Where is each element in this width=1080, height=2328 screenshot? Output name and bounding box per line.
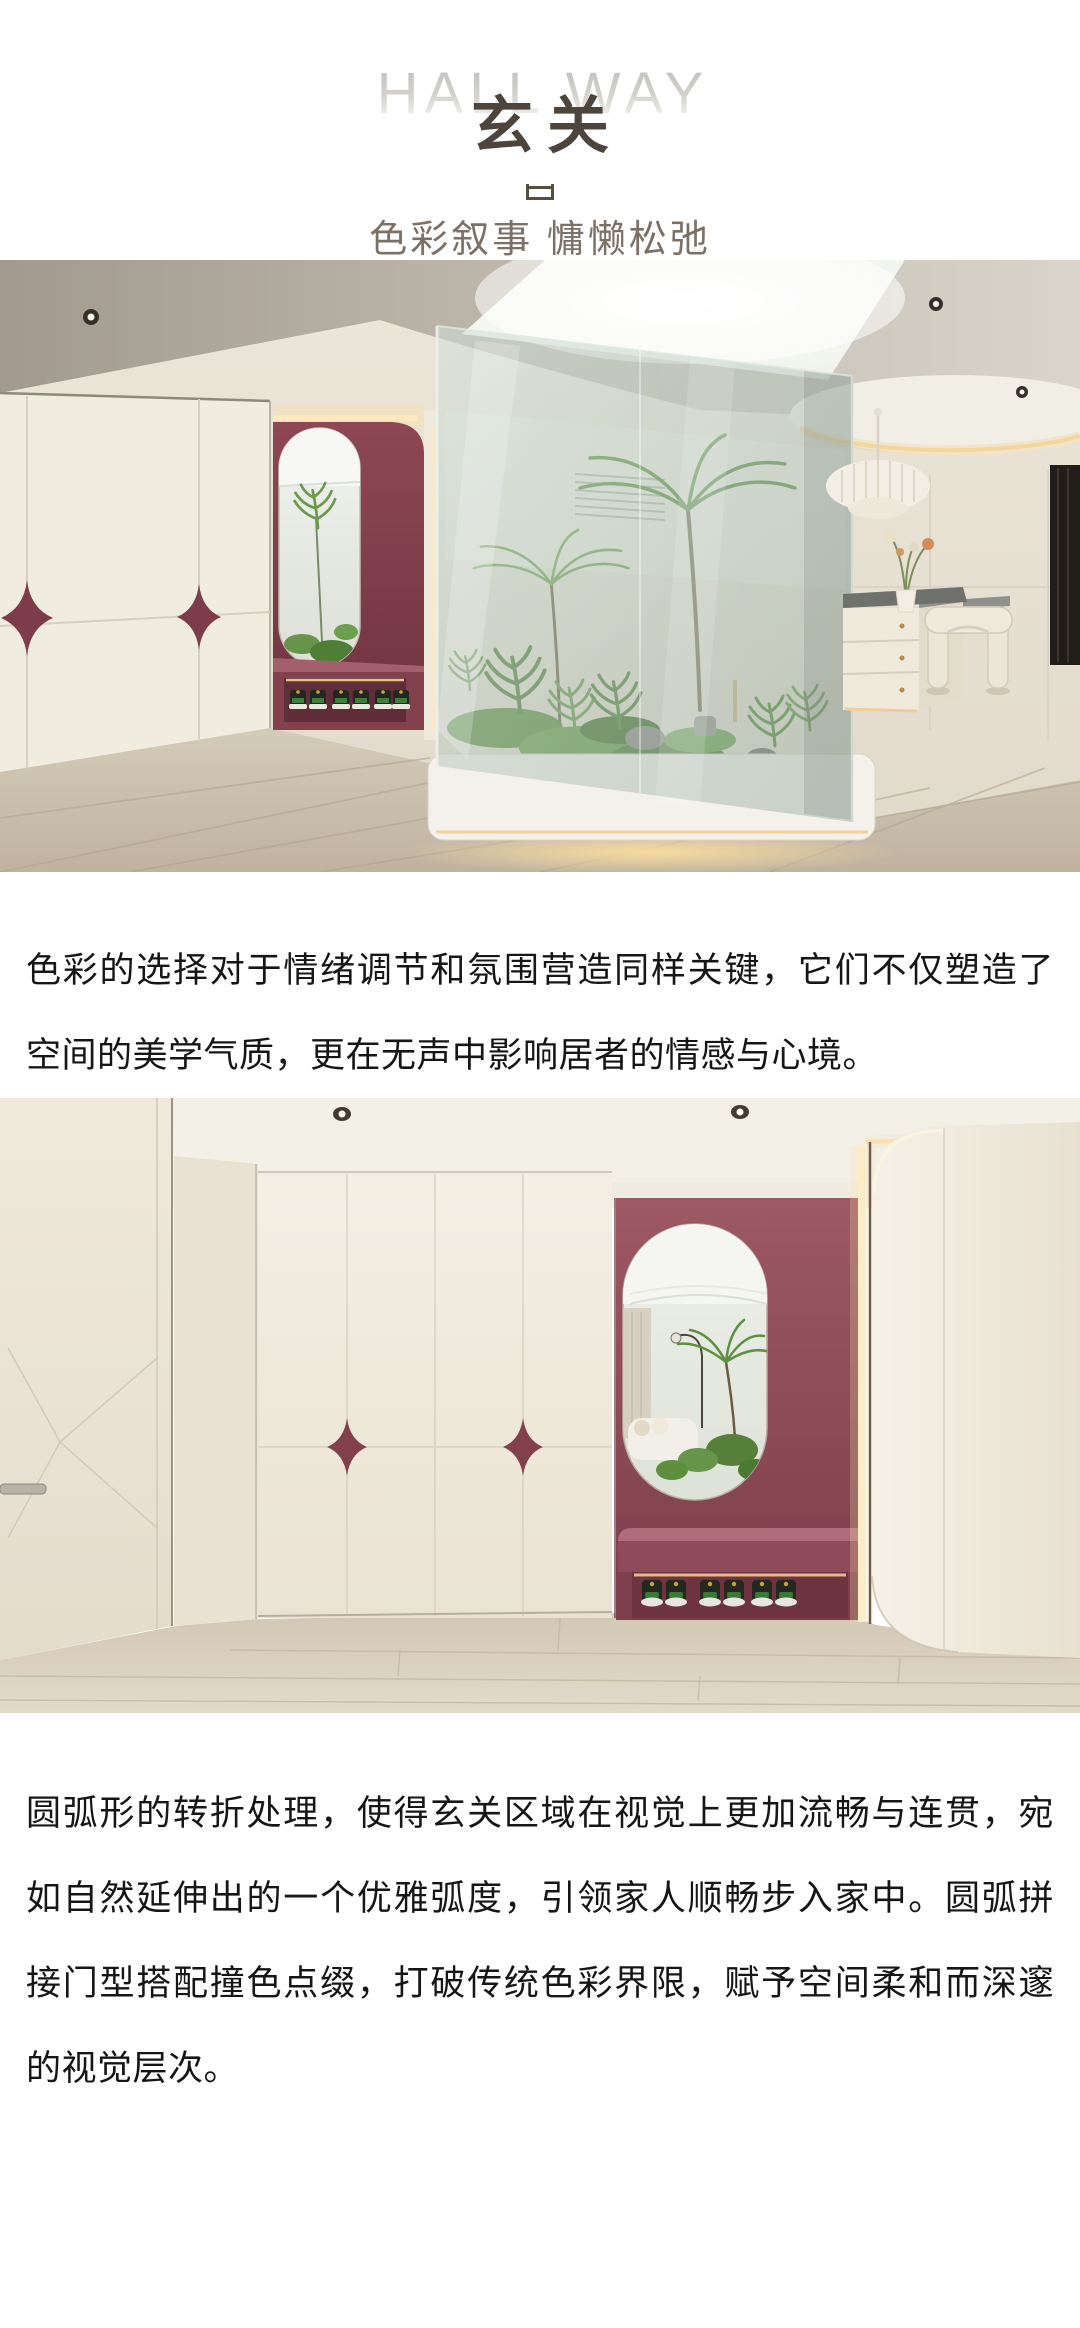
curved-corner-cabinet bbox=[872, 1122, 1080, 1658]
lit-wall-edge bbox=[424, 410, 437, 740]
dark-louver-window bbox=[1050, 465, 1080, 665]
accent-alcove bbox=[273, 406, 424, 730]
sneaker bbox=[352, 690, 370, 709]
door-handle bbox=[0, 1484, 46, 1494]
curved-cabinet-wall bbox=[258, 1172, 612, 1618]
sneaker bbox=[665, 1580, 687, 1607]
sneaker bbox=[775, 1580, 797, 1607]
sneaker bbox=[641, 1580, 663, 1607]
entry-door bbox=[0, 1098, 172, 1660]
cove-light-strip bbox=[273, 415, 418, 421]
hallway-photo-1-illustration bbox=[0, 260, 1080, 872]
sneaker bbox=[332, 690, 350, 709]
sneaker bbox=[374, 690, 392, 709]
header-subtitle: 色彩叙事 慵懒松弛 bbox=[0, 220, 1080, 260]
body-paragraph-2: 圆弧形的转折处理，使得玄关区域在视觉上更加流畅与连贯，宛如自然延伸出的一个优雅弧… bbox=[0, 1771, 1080, 2111]
glass-atrium-panel bbox=[437, 326, 852, 822]
open-top-frame-icon bbox=[526, 184, 554, 200]
led-strip bbox=[850, 1142, 874, 1624]
hallway-photo-1 bbox=[0, 260, 1080, 872]
sneaker bbox=[392, 690, 410, 709]
corner-return-wall bbox=[174, 1156, 258, 1626]
section-header: HALL WAY 玄关 色彩叙事 慵懒松弛 bbox=[0, 0, 1080, 260]
sneaker bbox=[723, 1580, 745, 1607]
sneaker bbox=[751, 1580, 773, 1607]
sneaker bbox=[309, 690, 327, 709]
sneaker bbox=[699, 1580, 721, 1607]
header-cn-title: 玄关 bbox=[0, 96, 1080, 158]
hallway-photo-2-illustration bbox=[0, 1098, 1080, 1713]
wardrobe-cabinets bbox=[0, 393, 270, 772]
sneaker bbox=[289, 690, 307, 709]
accent-alcove bbox=[612, 1182, 866, 1620]
article-page: HALL WAY 玄关 色彩叙事 慵懒松弛 bbox=[0, 0, 1080, 2328]
body-paragraph-1: 色彩的选择对于情绪调节和氛围营造同样关键，它们不仅塑造了空间的美学气质，更在无声… bbox=[0, 928, 1080, 1098]
hallway-photo-2 bbox=[0, 1098, 1080, 1713]
